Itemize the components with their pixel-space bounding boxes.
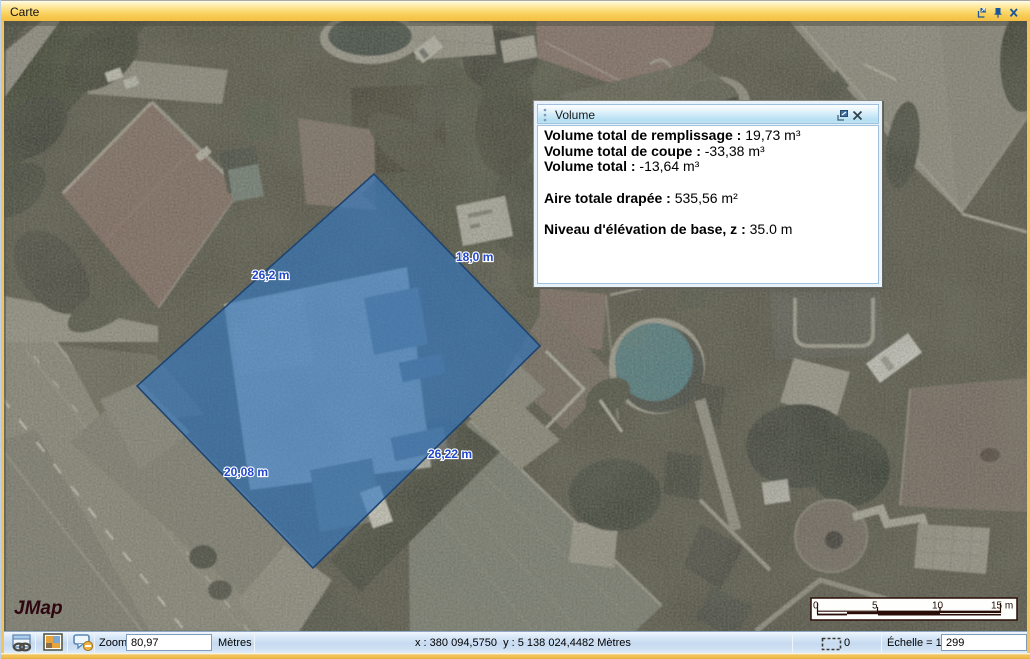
- svg-text:JMap: JMap: [14, 598, 63, 619]
- svg-text:18,0 m: 18,0 m: [456, 250, 493, 264]
- svg-text:15 m: 15 m: [991, 601, 1013, 612]
- svg-text:26,2 m: 26,2 m: [252, 268, 289, 282]
- svg-text:20,08 m: 20,08 m: [224, 465, 268, 479]
- svg-text:10: 10: [932, 601, 944, 612]
- svg-text:26,22 m: 26,22 m: [428, 447, 472, 461]
